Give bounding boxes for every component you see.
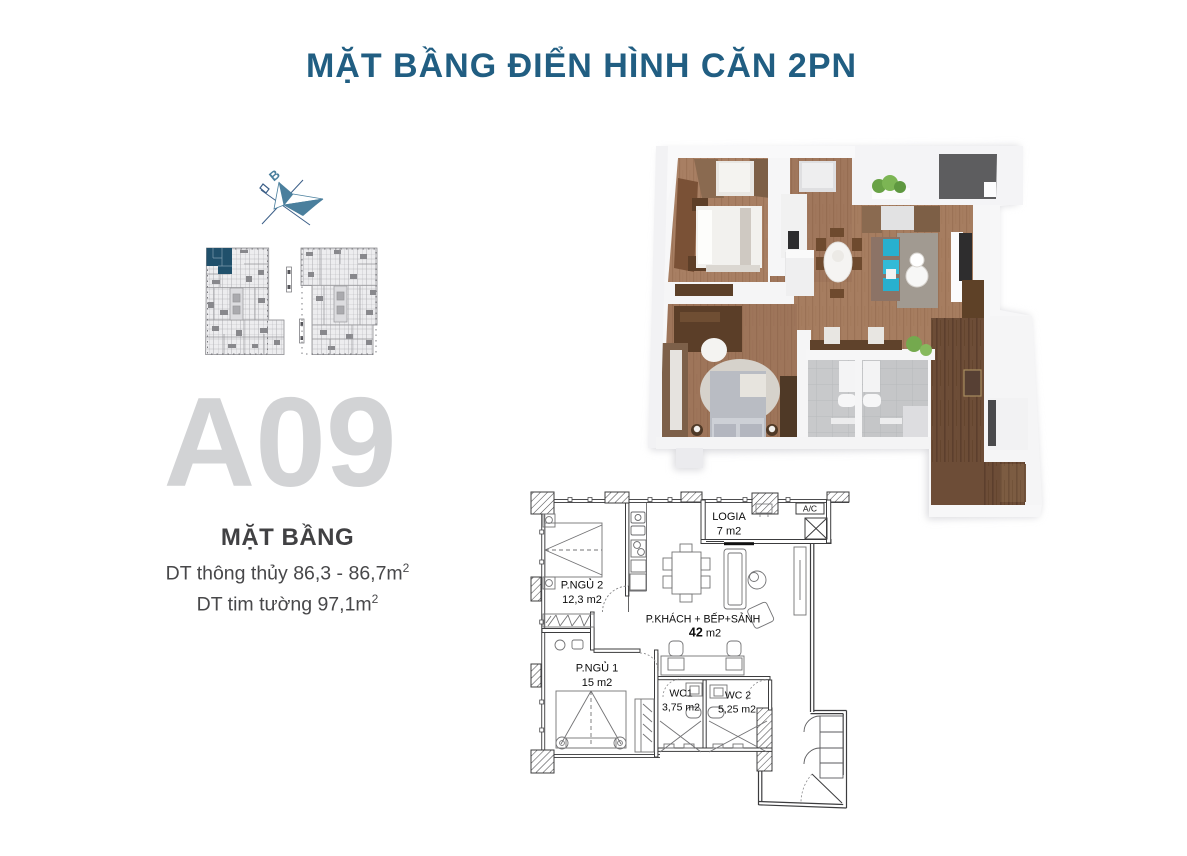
svg-text:5,25 m2: 5,25 m2 (718, 704, 756, 716)
svg-text:P.KHÁCH + BẾP+SẢNH: P.KHÁCH + BẾP+SẢNH (646, 613, 761, 626)
svg-text:WC 2: WC 2 (725, 690, 751, 702)
svg-text:WC1: WC1 (669, 688, 692, 700)
svg-text:12,3 m2: 12,3 m2 (562, 594, 602, 606)
svg-text:3,75 m2: 3,75 m2 (662, 702, 700, 714)
svg-text:15 m2: 15 m2 (582, 677, 613, 689)
svg-text:P.NGỦ 1: P.NGỦ 1 (576, 662, 619, 675)
svg-text:A/C: A/C (803, 504, 817, 514)
svg-text:7 m2: 7 m2 (717, 526, 741, 538)
svg-text:42 m2: 42 m2 (689, 626, 721, 640)
svg-text:B: B (266, 166, 283, 184)
svg-text:P.NGỦ 2: P.NGỦ 2 (561, 579, 604, 592)
svg-text:LOGIA: LOGIA (712, 511, 746, 523)
